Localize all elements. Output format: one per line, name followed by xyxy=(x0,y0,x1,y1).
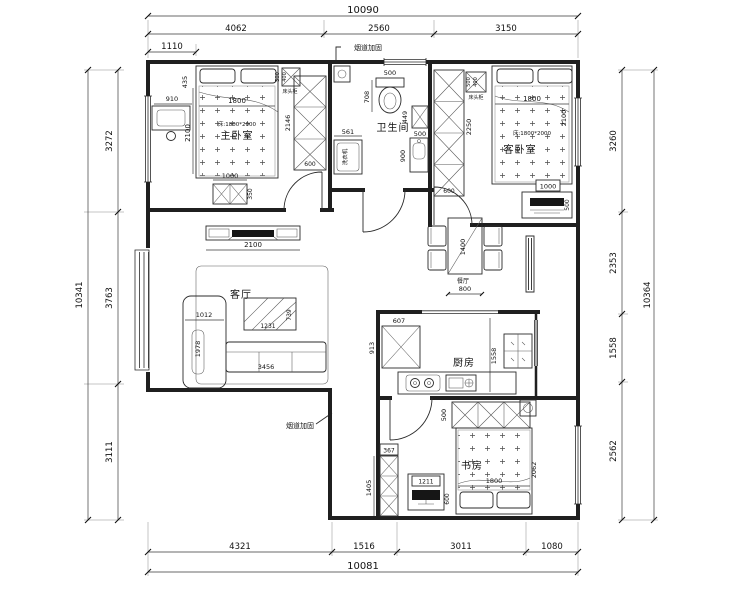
guest-tv-w: 1000 xyxy=(540,183,557,191)
living-tv-wall-dim: 2100 xyxy=(244,241,262,249)
master-bed-spec: 床:1800*2000 xyxy=(218,120,257,128)
room-label-master: 主卧室 xyxy=(221,129,254,142)
master-ns-label: 床头柜 xyxy=(282,88,297,95)
dim-bottom-seg4: 1080 xyxy=(541,542,563,552)
guest-wardrobe xyxy=(434,70,464,196)
master-ns-d: 400 xyxy=(282,72,288,82)
study-bed-d: 2062 xyxy=(530,462,538,479)
desk-w: 1211 xyxy=(418,479,433,486)
pillow xyxy=(241,69,276,83)
door-study xyxy=(390,398,432,440)
washer-width: 561 xyxy=(342,128,354,136)
guest-ns-w: 500 xyxy=(466,77,472,87)
stool xyxy=(167,132,176,141)
sofa xyxy=(226,342,326,372)
dim-right-seg2: 2353 xyxy=(609,252,619,274)
dim-right-total: 10364 xyxy=(643,281,653,308)
guest-ns-d: 400 xyxy=(473,77,479,87)
chaise-depth: 1978 xyxy=(194,341,202,358)
master-side-dim: 435 xyxy=(181,76,189,88)
sink xyxy=(446,375,476,391)
washer-label: 洗衣机 xyxy=(341,148,349,165)
master-cab-w: 1000 xyxy=(222,172,239,180)
study-cab-h: 1405 xyxy=(365,480,373,497)
dim-top-seg1: 4062 xyxy=(225,24,247,34)
dim-top-seg2: 2560 xyxy=(368,24,390,34)
master-wardrobe xyxy=(294,76,326,170)
master-wardrobe-w: 600 xyxy=(304,161,316,168)
coffee-table-w: 1231 xyxy=(260,323,275,330)
dim-top-total: 10090 xyxy=(347,5,379,16)
toilet xyxy=(376,78,404,113)
bath-cab-w: 500 xyxy=(414,130,426,138)
room-bath: 500 708 449 500 900 洗衣机 561 卫生间 xyxy=(334,66,428,174)
room-master: 1800 2100 435 910 500 400 床头柜 2146 600 1… xyxy=(152,66,326,204)
room-guest: 2250 600 500 400 床头柜 1800 2100 床:1800*20… xyxy=(434,66,572,218)
pillow xyxy=(497,69,533,83)
stove xyxy=(406,375,440,391)
master-dresser-dim: 910 xyxy=(166,95,178,103)
room-kitchen: 607 913 厨房 1558 xyxy=(368,317,536,416)
kitchen-corner-counter xyxy=(382,326,420,368)
guest-bed-spec: 床:1800*2000 xyxy=(513,129,552,137)
study-cabinet xyxy=(380,456,398,516)
dim-left-seg2: 3763 xyxy=(105,287,115,309)
master-cabinet xyxy=(213,184,247,204)
study-wardrobe xyxy=(452,402,530,428)
vanity-dim: 900 xyxy=(399,150,407,162)
entry-partition xyxy=(526,236,534,292)
study-wardrobe-d: 500 xyxy=(440,409,448,421)
guest-wardrobe-h: 2250 xyxy=(465,119,473,136)
door-master xyxy=(284,172,322,210)
master-bed-depth: 2100 xyxy=(184,124,192,142)
room-study: 367 1405 500 1800 2062 书房 1211 600 xyxy=(365,402,538,516)
guest-bed-depth: 2100 xyxy=(560,110,568,127)
dim-top-seg3: 3150 xyxy=(495,24,517,34)
pillow xyxy=(497,492,530,508)
tv-console xyxy=(206,226,300,240)
chaise xyxy=(183,296,226,388)
room-label-study: 书房 xyxy=(461,459,483,472)
room-living: 2100 1012 1978 3456 1231 739 客厅 xyxy=(183,226,328,388)
desk-d: 600 xyxy=(444,493,451,505)
guest-ns-label: 床头柜 xyxy=(468,94,483,101)
room-label-guest: 客卧室 xyxy=(504,143,537,156)
room-label-dining: 餐厅 xyxy=(457,277,469,285)
room-dining: 1400 餐厅 800 xyxy=(428,218,502,296)
pillow xyxy=(538,69,572,83)
sofa-width: 3456 xyxy=(258,363,275,371)
dim-right-seg1: 3260 xyxy=(609,130,619,152)
room-label-bath: 卫生间 xyxy=(377,121,410,134)
pillow xyxy=(200,69,235,83)
door-bath xyxy=(363,190,405,232)
floor-plan-drawing: 10090 4062 2560 3150 1110 10341 3272 376… xyxy=(0,0,740,592)
master-cab-d: 350 xyxy=(247,188,254,200)
guest-wardrobe-w: 600 xyxy=(443,188,455,195)
coffee-table-d: 739 xyxy=(286,309,293,321)
dim-left-total: 10341 xyxy=(75,281,85,308)
bath-cabinet xyxy=(412,106,428,128)
dim-top-sub: 1110 xyxy=(161,42,183,52)
dim-bottom-seg1: 4321 xyxy=(229,542,251,552)
master-ns-w: 500 xyxy=(275,72,281,82)
dim-right-seg3: 1558 xyxy=(609,337,619,359)
pillow xyxy=(460,492,493,508)
bath-cab-d: 449 xyxy=(401,111,409,123)
dim-bottom-total: 10081 xyxy=(347,561,379,572)
window-living xyxy=(144,248,152,372)
kitchen-depth: 1558 xyxy=(490,348,498,365)
room-label-living: 客厅 xyxy=(230,288,252,301)
fridge xyxy=(504,334,532,368)
room-label-kitchen: 厨房 xyxy=(453,356,475,369)
kitchen-counter-d: 913 xyxy=(368,342,376,354)
dim-bottom-seg3: 3011 xyxy=(450,542,472,552)
study-cab-w: 367 xyxy=(383,448,395,455)
flue-label-top: 烟道加固 xyxy=(354,43,382,52)
dim-left-seg1: 3272 xyxy=(105,130,115,152)
kitchen-counter-w: 607 xyxy=(393,317,405,325)
toilet-depth: 708 xyxy=(363,91,371,103)
vanity-sink xyxy=(410,138,428,172)
guest-bed-width: 1800 xyxy=(523,95,541,103)
flue-label-bottom: 烟道加固 xyxy=(286,421,314,430)
floor-plan-sheet: 10090 4062 2560 3150 1110 10341 3272 376… xyxy=(0,0,740,592)
toilet-width: 500 xyxy=(384,69,396,77)
guest-tv-d: 500 xyxy=(564,199,571,211)
flue-shaft xyxy=(334,66,350,82)
master-bed-width: 1800 xyxy=(228,97,246,105)
chaise-width: 1012 xyxy=(196,311,213,319)
dim-left-seg3: 3111 xyxy=(105,441,115,463)
dim-right-seg4: 2562 xyxy=(609,440,619,462)
dining-table-l: 1400 xyxy=(459,239,467,256)
dim-bottom-seg2: 1516 xyxy=(353,542,375,552)
study-bed-w: 1800 xyxy=(486,477,503,485)
kitchen-counter-bottom xyxy=(398,372,516,394)
master-wardrobe-h: 2146 xyxy=(284,115,292,132)
dining-table-w: 800 xyxy=(459,285,471,293)
